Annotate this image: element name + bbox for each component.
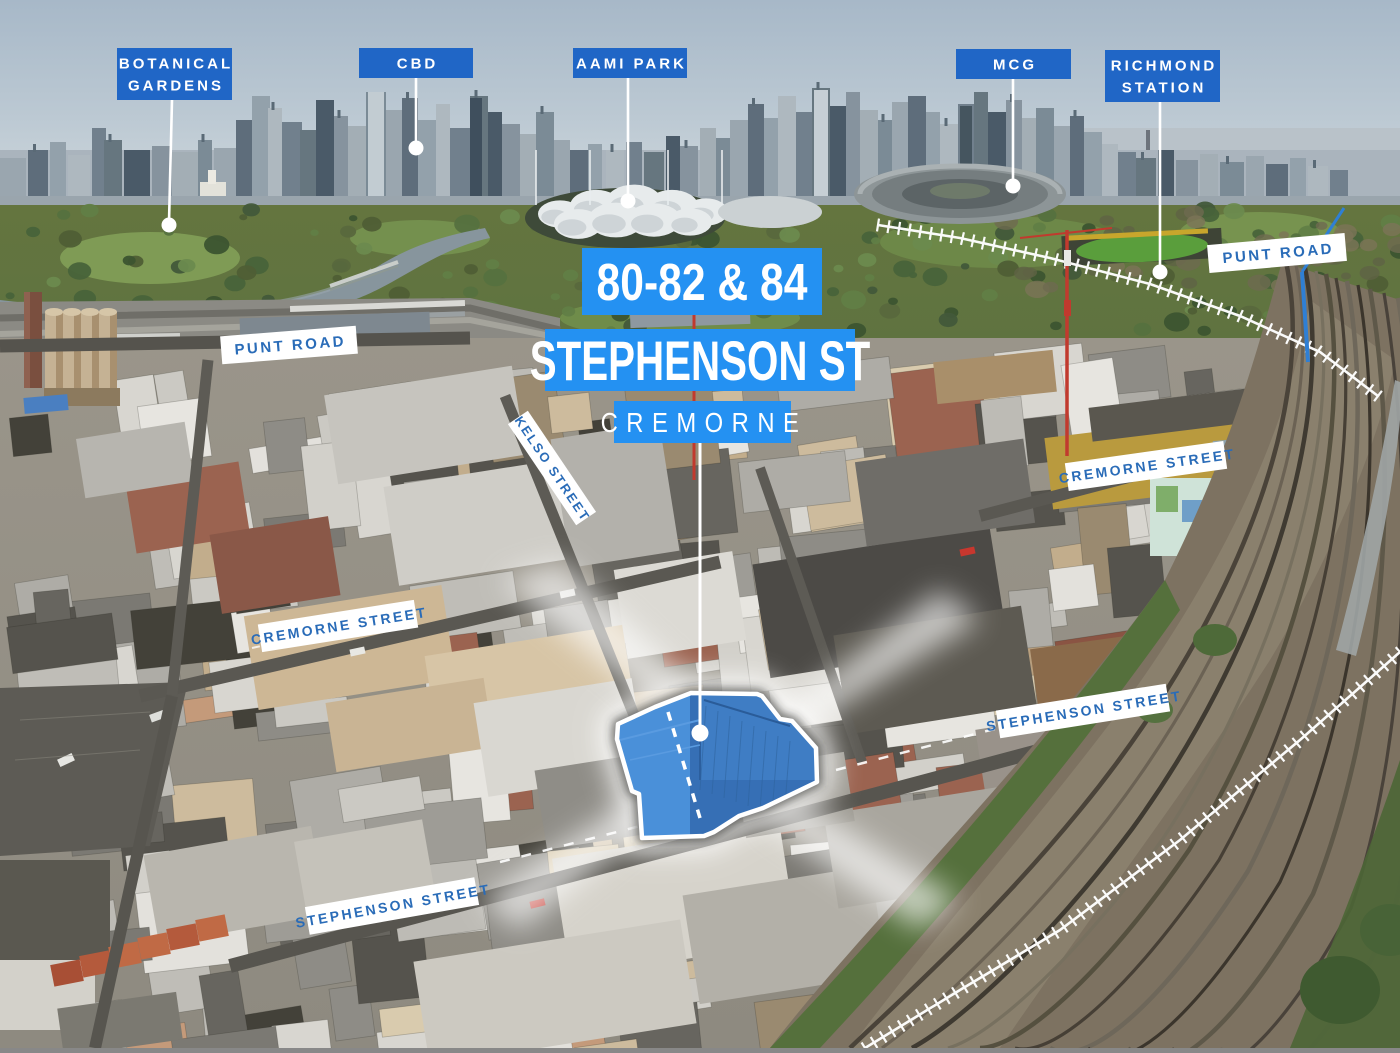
svg-text:CBD: CBD [397,55,439,72]
svg-text:MCG: MCG [993,56,1037,73]
svg-text:BOTANICAL: BOTANICAL [119,55,233,72]
svg-text:STEPHENSON ST: STEPHENSON ST [530,331,871,393]
svg-text:AAMI PARK: AAMI PARK [576,55,687,72]
svg-text:RICHMOND: RICHMOND [1111,57,1218,74]
svg-text:CREMORNE: CREMORNE [601,406,808,438]
svg-text:STATION: STATION [1122,79,1207,96]
svg-text:80-82 & 84: 80-82 & 84 [597,254,808,312]
svg-text:GARDENS: GARDENS [128,77,224,94]
